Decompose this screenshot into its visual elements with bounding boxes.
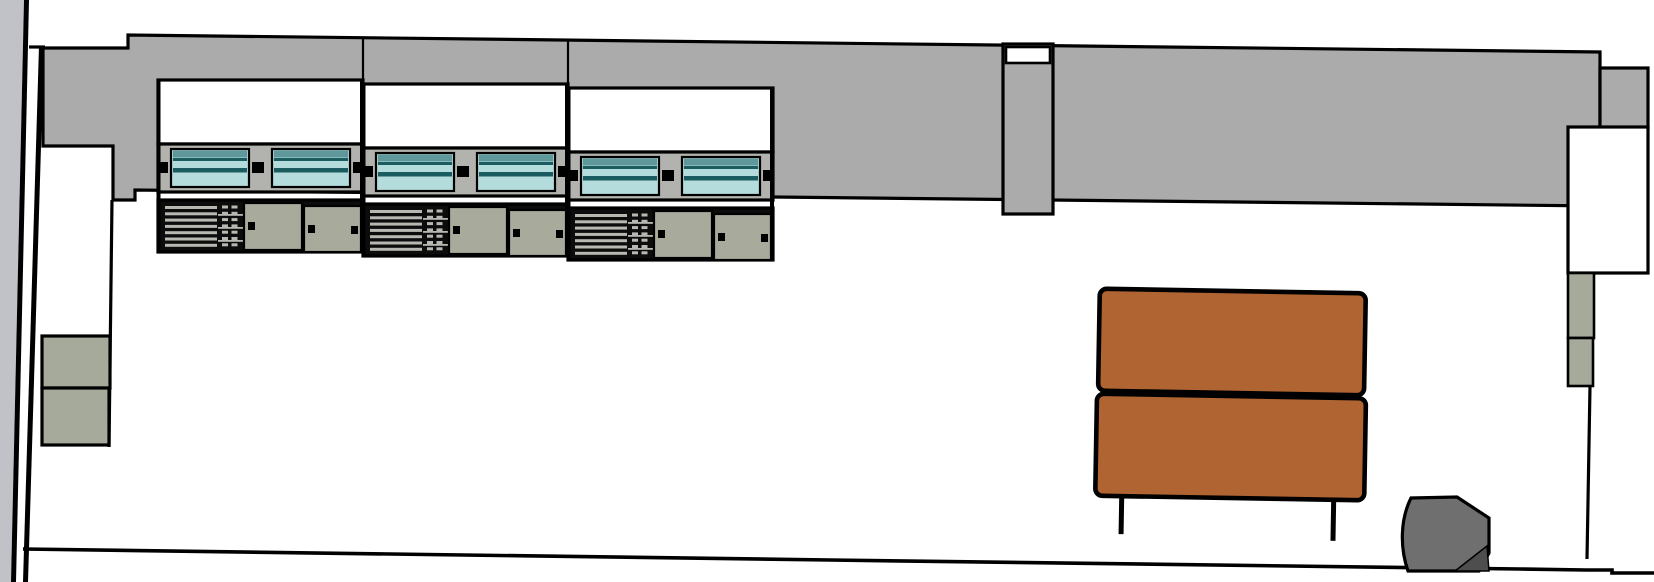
sofa-back-cushion-top — [1098, 289, 1366, 396]
wall-band-right-block — [1600, 68, 1648, 128]
scene-canvas — [0, 0, 1654, 582]
scene-root — [0, 0, 1654, 582]
wall-box[interactable] — [1568, 273, 1594, 338]
sofa[interactable] — [1095, 289, 1368, 542]
sofa-leg — [1119, 496, 1125, 534]
wall-box[interactable] — [1568, 338, 1593, 386]
workstation-unit-2[interactable] — [362, 84, 570, 256]
wall-box[interactable] — [42, 388, 109, 445]
model-viewport — [0, 0, 1654, 582]
workstation-unit-3[interactable] — [567, 88, 775, 260]
sofa-back-cushion-bottom — [1095, 394, 1366, 501]
workstation-unit-1[interactable] — [157, 80, 365, 252]
sofa-leg — [1330, 502, 1336, 541]
wall-box[interactable] — [42, 336, 110, 388]
ottoman[interactable] — [1402, 497, 1489, 571]
right-wall-edge — [1587, 386, 1590, 559]
column-cap-panel — [1006, 47, 1050, 63]
column[interactable] — [1003, 44, 1053, 214]
right-white-panel — [1568, 127, 1648, 273]
